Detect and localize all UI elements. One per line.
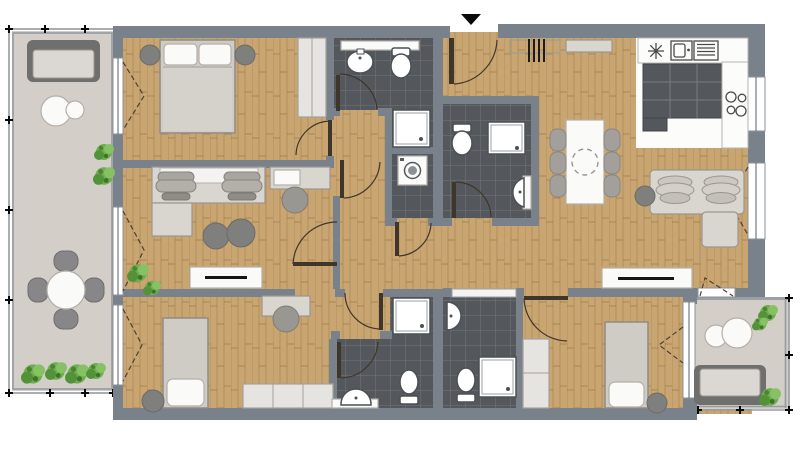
wardrobe-top-left xyxy=(298,38,326,117)
side-table xyxy=(722,318,752,348)
double-bed xyxy=(160,40,235,133)
bedroom-door-leaf xyxy=(379,293,383,330)
shower-icon xyxy=(488,122,525,154)
shower-icon xyxy=(479,357,516,397)
pillow xyxy=(164,44,197,65)
desk-pad xyxy=(274,170,300,185)
burner-icon xyxy=(648,43,664,59)
shower-icon xyxy=(393,110,430,147)
garden-bench xyxy=(27,40,100,82)
desk-chair xyxy=(273,306,299,332)
utility-door-leaf xyxy=(395,222,399,256)
side-table xyxy=(66,101,84,119)
pouf xyxy=(203,223,229,249)
shower-icon xyxy=(393,298,430,334)
bathroom-door-leaf xyxy=(452,182,456,218)
entrance-arrow-icon xyxy=(461,14,481,25)
dining-chair xyxy=(604,129,620,151)
sliding-door xyxy=(452,289,516,297)
side-table xyxy=(635,186,655,206)
office-chair xyxy=(156,172,196,200)
toilet-icon xyxy=(457,368,475,402)
entrance-door-leaf xyxy=(449,38,454,84)
single-bed xyxy=(605,322,648,408)
kitchen-side-counter xyxy=(722,62,748,148)
office-door-leaf xyxy=(340,160,344,198)
dining-chair xyxy=(550,129,566,151)
desk-chair xyxy=(282,187,308,213)
toilet-icon xyxy=(391,48,411,78)
office-south-door-leaf xyxy=(293,262,337,266)
office-chair xyxy=(222,172,262,200)
pillow xyxy=(199,44,231,65)
stool xyxy=(142,390,164,412)
pillow xyxy=(167,379,204,406)
dining-chair xyxy=(604,152,620,174)
toilet-icon xyxy=(400,370,418,404)
tv-lowboard-office xyxy=(190,267,262,288)
floor-plan-canvas xyxy=(0,0,800,458)
bathroom-door-leaf xyxy=(336,75,340,111)
pouf xyxy=(227,219,255,247)
balcony-left-floor xyxy=(12,31,113,391)
washing-machine-icon xyxy=(398,156,427,185)
nightstand xyxy=(140,45,160,65)
wardrobe-bottom-left xyxy=(243,384,333,408)
wardrobe-bottom-right xyxy=(523,339,549,408)
bathroom-door-leaf xyxy=(337,342,341,378)
dining-chair xyxy=(550,175,566,197)
dining-chair xyxy=(604,175,620,197)
garden-bench xyxy=(694,365,766,405)
bedroom-door-leaf xyxy=(328,120,332,156)
single-bed xyxy=(163,318,208,408)
dining-area xyxy=(550,120,620,204)
desk-return xyxy=(152,203,192,236)
dining-chair xyxy=(550,152,566,174)
bedroom-door-leaf xyxy=(524,296,568,300)
round-table xyxy=(47,271,85,309)
pillow xyxy=(609,382,644,407)
stool xyxy=(647,393,667,413)
tv-lowboard-living xyxy=(602,268,692,288)
floor-plan xyxy=(0,0,800,458)
shoe-shelf xyxy=(566,40,612,52)
toilet-icon xyxy=(452,124,472,155)
nightstand xyxy=(235,45,255,65)
